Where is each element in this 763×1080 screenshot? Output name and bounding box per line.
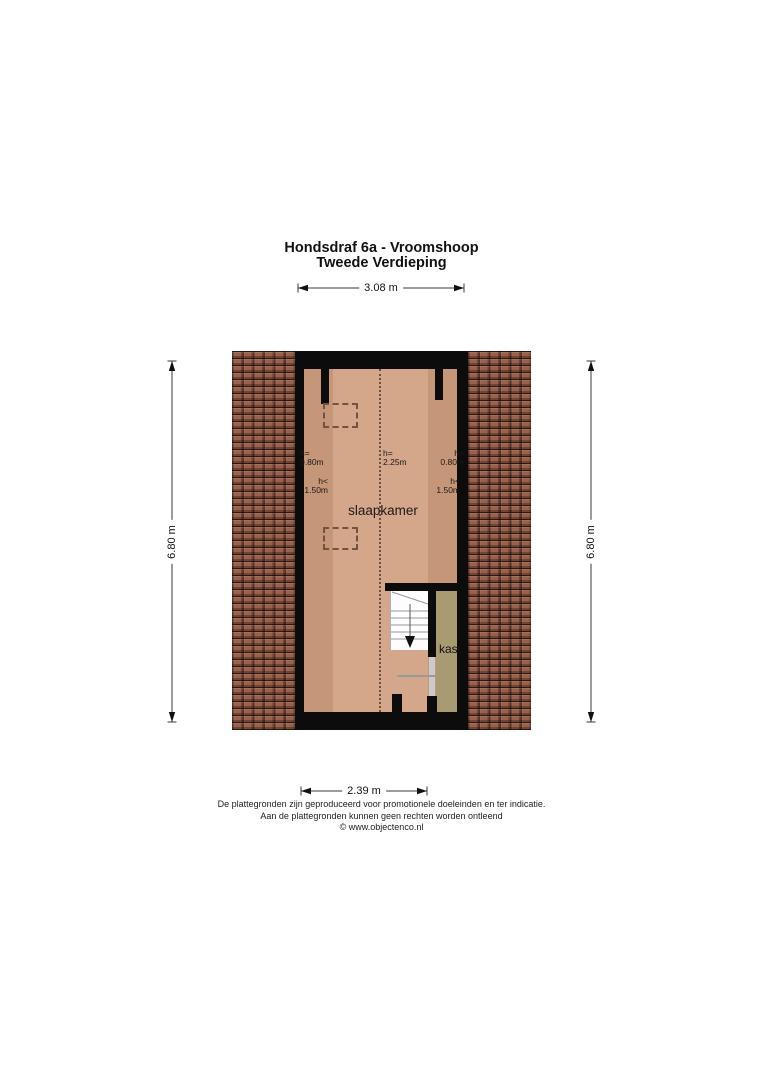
height-label-right-mid-l2: 1.50m [430, 486, 460, 495]
footer-disclaimer: De plattegronden zijn geproduceerd voor … [0, 799, 763, 834]
floorplan-page: Hondsdraf 6a - Vroomshoop Tweede Verdiep… [0, 0, 763, 1080]
height-label-left-mid-l2: 1.50m [300, 486, 328, 495]
footer-line-1: De plattegronden zijn geproduceerd voor … [0, 799, 763, 811]
dimension-right-label: 6.80 m [585, 520, 597, 564]
height-label-left-low: h= 0.80m [300, 449, 340, 466]
stair-direction-arrow-icon [405, 636, 415, 648]
skylight-1 [323, 403, 358, 428]
dimension-top: 3.08 m [296, 282, 466, 294]
page-title: Hondsdraf 6a - Vroomshoop Tweede Verdiep… [0, 241, 763, 271]
height-label-right-mid: h< 1.50m [430, 477, 460, 494]
title-floor: Tweede Verdieping [0, 256, 763, 271]
footer-line-2: Aan de plattegronden kunnen geen rechten… [0, 811, 763, 823]
height-label-left-low-l2: 0.80m [300, 458, 340, 467]
dimension-right: 6.80 m [585, 360, 597, 723]
closet-door [429, 657, 435, 698]
stair-enclosure-wall-top [385, 583, 468, 591]
height-label-left-mid: h< 1.50m [300, 477, 328, 494]
dimension-bottom: 2.39 m [299, 785, 429, 797]
staircase [390, 591, 429, 650]
dimension-top-label: 3.08 m [359, 282, 403, 294]
skylight-2 [323, 527, 358, 550]
closet-door-swing-line [397, 675, 437, 677]
wall-stub-bottom-right [427, 696, 437, 712]
room-label-slaapkamer: slaapkamer [333, 503, 433, 518]
height-label-center: h= 2.25m [383, 449, 423, 466]
footer-line-3: © www.objectenco.nl [0, 822, 763, 834]
title-address: Hondsdraf 6a - Vroomshoop [0, 241, 763, 256]
wall-stub-top-right [435, 369, 443, 400]
roof-tiles-right [468, 351, 531, 730]
dimension-bottom-label: 2.39 m [342, 785, 386, 797]
dimension-left-label: 6.80 m [166, 520, 178, 564]
dimension-left: 6.80 m [166, 360, 178, 723]
closet-label: kast [434, 642, 466, 656]
wall-stub-bottom-left [392, 694, 402, 712]
roof-tiles-left [232, 351, 295, 730]
wall-stub-top-left [321, 369, 329, 404]
height-label-right-low: h= 0.80m [424, 449, 464, 466]
staircase-steps [391, 591, 429, 650]
roof-ridge-line [379, 369, 381, 712]
height-label-center-l2: 2.25m [383, 458, 423, 467]
height-label-right-low-l2: 0.80m [424, 458, 464, 467]
